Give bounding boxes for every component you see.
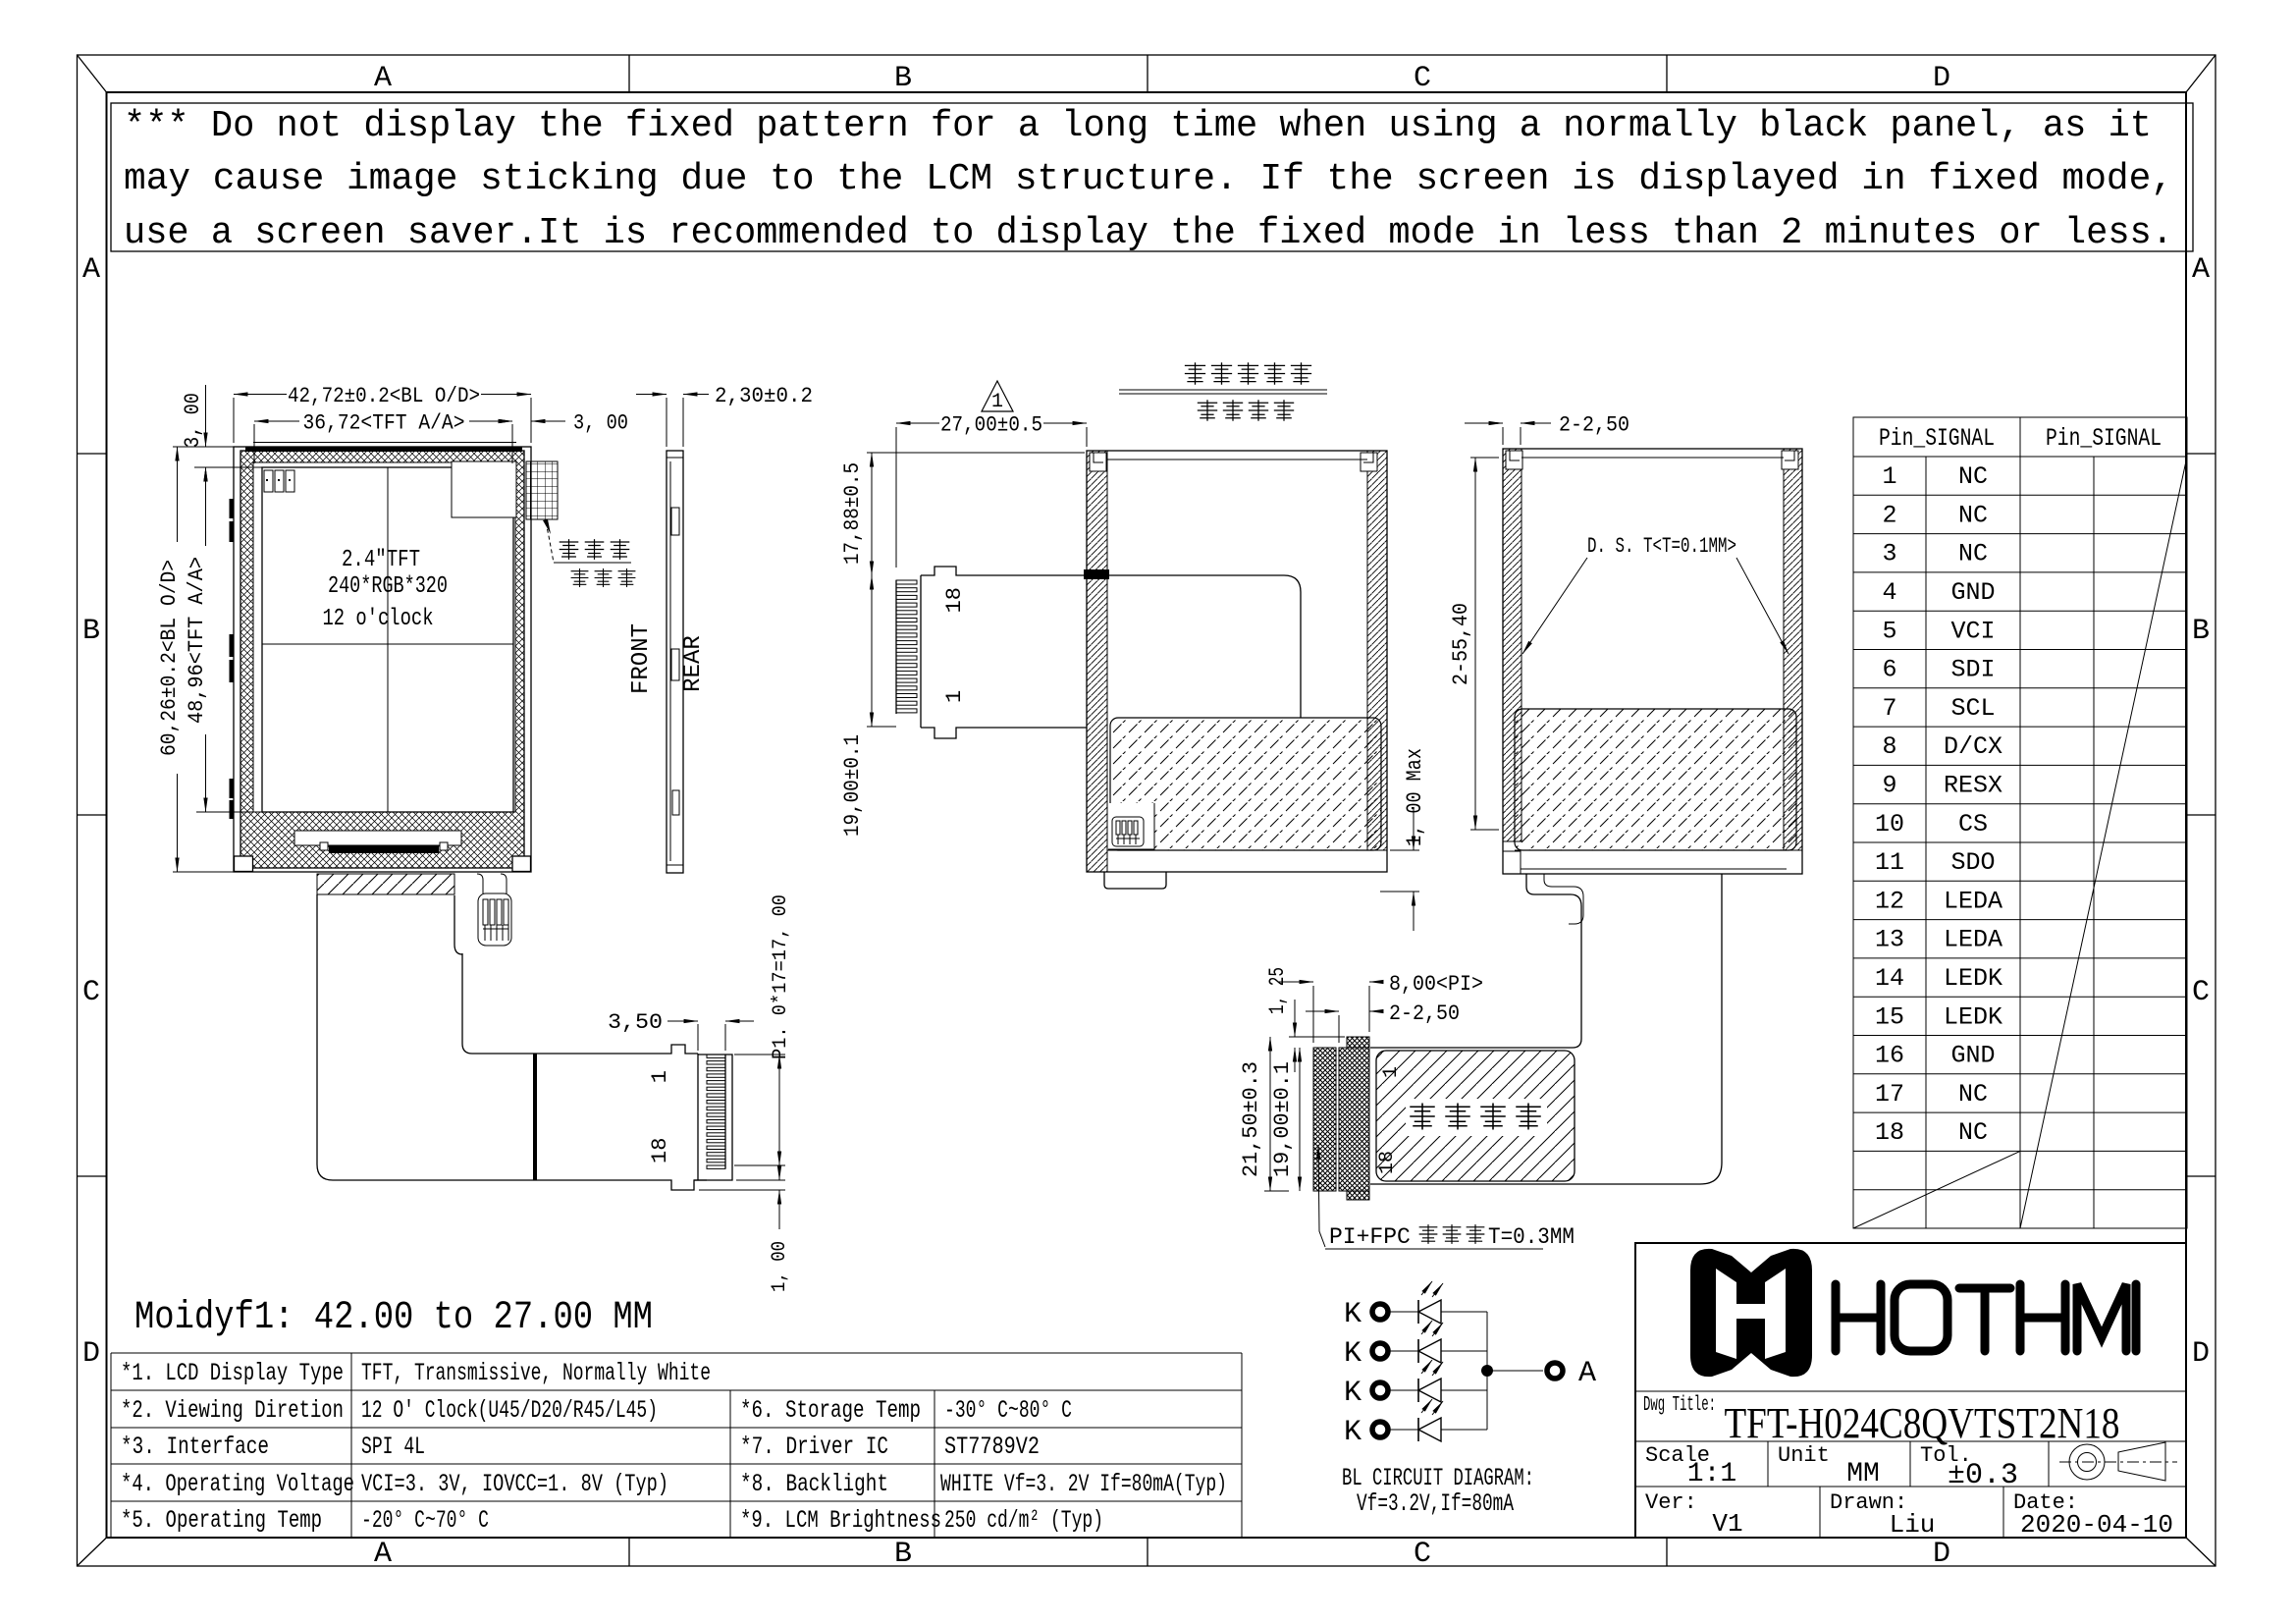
svg-text:C: C: [1414, 62, 1431, 95]
svg-text:RESX: RESX: [1944, 772, 2002, 800]
svg-text:PI+FPC: PI+FPC: [1329, 1224, 1411, 1250]
svg-text:3: 3: [1882, 540, 1896, 568]
svg-text:12: 12: [1875, 887, 1904, 915]
svg-text:use a screen saver.It is recom: use a screen saver.It is recommended to …: [124, 212, 2173, 254]
svg-text:SPI 4L: SPI 4L: [361, 1433, 425, 1461]
svg-text:LEDK: LEDK: [1944, 1002, 2002, 1031]
svg-text:12 o'clock: 12 o'clock: [323, 606, 434, 632]
svg-text:250 cd/m² (Typ): 250 cd/m² (Typ): [944, 1506, 1103, 1535]
svg-text:3, 00: 3, 00: [181, 393, 205, 448]
svg-text:*** Do not display the fixed p: *** Do not display the fixed pattern for…: [124, 105, 2152, 147]
svg-text:2-2,50: 2-2,50: [1389, 1001, 1460, 1026]
svg-text:D: D: [1933, 62, 1950, 95]
svg-text:SDO: SDO: [1950, 848, 1995, 877]
svg-text:2-55,40: 2-55,40: [1449, 603, 1473, 685]
svg-text:1: 1: [648, 1070, 672, 1083]
svg-text:LEDA: LEDA: [1944, 887, 2002, 915]
svg-text:Moidyf1: 42.00 to 27.00 MM: Moidyf1: 42.00 to 27.00 MM: [134, 1296, 653, 1340]
svg-text:A: A: [374, 62, 392, 95]
svg-text:*7. Driver IC: *7. Driver IC: [740, 1433, 888, 1461]
svg-text:1, 00: 1, 00: [769, 1241, 791, 1292]
svg-text:1, 25: 1, 25: [1265, 967, 1290, 1014]
svg-text:17,88±0.5: 17,88±0.5: [840, 462, 865, 565]
svg-text:Unit: Unit: [1778, 1443, 1830, 1468]
svg-text:NC: NC: [1958, 462, 1988, 491]
svg-text:*6. Storage Temp: *6. Storage Temp: [740, 1396, 921, 1425]
svg-text:D: D: [2192, 1337, 2210, 1371]
svg-text:LEDA: LEDA: [1944, 926, 2002, 954]
svg-text:Liu: Liu: [1890, 1510, 1936, 1540]
svg-text:V1: V1: [1712, 1509, 1742, 1539]
svg-text:1, 00 Max: 1, 00 Max: [1403, 748, 1427, 846]
svg-text:*9. LCM Brightness: *9. LCM Brightness: [740, 1506, 941, 1535]
svg-text:16: 16: [1875, 1042, 1904, 1070]
svg-text:2-2,50: 2-2,50: [1559, 413, 1629, 438]
svg-text:3, 00: 3, 00: [573, 411, 628, 436]
svg-text:3,50: 3,50: [608, 1010, 663, 1035]
svg-text:*8. Backlight: *8. Backlight: [740, 1470, 888, 1498]
svg-text:8,00<PI>: 8,00<PI>: [1389, 972, 1483, 997]
svg-text:Dwg Title:: Dwg Title:: [1643, 1394, 1716, 1417]
svg-text:7: 7: [1882, 694, 1896, 723]
svg-text:21,50±0.3: 21,50±0.3: [1239, 1061, 1263, 1177]
svg-text:-20° C~70° C: -20° C~70° C: [361, 1506, 489, 1535]
svg-text:1: 1: [942, 690, 967, 703]
svg-text:17: 17: [1875, 1080, 1904, 1109]
svg-text:14: 14: [1875, 964, 1904, 993]
svg-text:VCI=3. 3V, IOVCC=1. 8V (Typ): VCI=3. 3V, IOVCC=1. 8V (Typ): [361, 1470, 668, 1498]
svg-text:B: B: [894, 1538, 912, 1571]
svg-text:TFT, Transmissive, Normally Wh: TFT, Transmissive, Normally White: [361, 1359, 711, 1387]
svg-text:Ver:: Ver:: [1645, 1490, 1697, 1515]
svg-text:10: 10: [1875, 810, 1904, 839]
svg-text:C: C: [2192, 976, 2210, 1009]
svg-text:WHITE Vf=3. 2V If=80mA(Typ): WHITE Vf=3. 2V If=80mA(Typ): [940, 1470, 1227, 1498]
svg-text:-30° C~80° C: -30° C~80° C: [944, 1396, 1072, 1425]
svg-text:240*RGB*320: 240*RGB*320: [328, 573, 448, 600]
svg-text:A: A: [82, 253, 100, 287]
svg-text:27,00±0.5: 27,00±0.5: [940, 413, 1042, 438]
svg-text:CS: CS: [1958, 810, 1988, 839]
svg-text:B: B: [2192, 615, 2210, 648]
svg-text:BL CIRCUIT DIAGRAM:: BL CIRCUIT DIAGRAM:: [1342, 1464, 1534, 1492]
svg-text:1: 1: [1882, 462, 1896, 491]
svg-text:NC: NC: [1958, 540, 1988, 568]
svg-text:19,00±0.1: 19,00±0.1: [840, 734, 865, 837]
svg-text:Pin_SIGNAL: Pin_SIGNAL: [2046, 424, 2162, 453]
svg-text:±0.3: ±0.3: [1948, 1459, 2018, 1492]
svg-text:D/CX: D/CX: [1944, 732, 2002, 761]
svg-text:SCL: SCL: [1950, 694, 1995, 723]
svg-text:Vf=3.2V,If=80mA: Vf=3.2V,If=80mA: [1357, 1489, 1514, 1518]
svg-text:LEDK: LEDK: [1944, 964, 2002, 993]
svg-text:36,72<TFT A/A>: 36,72<TFT A/A>: [303, 411, 465, 436]
svg-text:18: 18: [1376, 1151, 1399, 1174]
svg-text:*4. Operating Voltage: *4. Operating Voltage: [121, 1470, 354, 1498]
svg-text:*2. Viewing Diretion: *2. Viewing Diretion: [121, 1396, 344, 1425]
svg-text:FRONT: FRONT: [628, 623, 655, 694]
svg-text:D: D: [82, 1337, 100, 1371]
svg-text:GND: GND: [1950, 1042, 1995, 1070]
svg-text:VCI: VCI: [1950, 617, 1995, 645]
svg-text:SDI: SDI: [1950, 656, 1995, 684]
svg-text:48,96<TFT A/A>: 48,96<TFT A/A>: [185, 557, 209, 724]
svg-text:REAR: REAR: [680, 635, 707, 692]
svg-text:1: 1: [991, 391, 1003, 413]
svg-text:2: 2: [1882, 501, 1896, 529]
svg-text:11: 11: [1875, 848, 1904, 877]
svg-text:C: C: [1414, 1538, 1431, 1571]
svg-text:MM: MM: [1846, 1459, 1880, 1489]
svg-text:A: A: [1578, 1357, 1596, 1390]
svg-text:2,30±0.2: 2,30±0.2: [715, 384, 813, 408]
svg-text:Pin_SIGNAL: Pin_SIGNAL: [1879, 424, 1995, 453]
svg-text:2020-04-10: 2020-04-10: [2020, 1510, 2173, 1540]
svg-text:D: D: [1933, 1538, 1950, 1571]
svg-text:NC: NC: [1958, 501, 1988, 529]
svg-text:B: B: [894, 62, 912, 95]
svg-text:1:1: 1:1: [1687, 1459, 1736, 1489]
svg-text:9: 9: [1882, 772, 1896, 800]
svg-text:ST7789V2: ST7789V2: [944, 1433, 1040, 1461]
svg-text:K: K: [1344, 1298, 1362, 1331]
svg-text:K: K: [1344, 1337, 1362, 1371]
svg-text:NC: NC: [1958, 1080, 1988, 1109]
svg-text:may cause image sticking due t: may cause image sticking due to the LCM …: [124, 158, 2173, 200]
svg-text:4: 4: [1882, 578, 1896, 607]
svg-text:12 O' Clock(U45/D20/R45/L45): 12 O' Clock(U45/D20/R45/L45): [361, 1396, 658, 1425]
svg-text:B: B: [82, 615, 100, 648]
svg-text:GND: GND: [1950, 578, 1995, 607]
svg-text:8: 8: [1882, 732, 1896, 761]
svg-text:60,26±0.2<BL O/D>: 60,26±0.2<BL O/D>: [157, 560, 182, 756]
svg-text:15: 15: [1875, 1002, 1904, 1031]
svg-text:18: 18: [648, 1138, 672, 1163]
svg-text:D. S. T<T=0.1MM>: D. S. T<T=0.1MM>: [1587, 534, 1736, 559]
svg-text:18: 18: [942, 587, 967, 613]
svg-text:K: K: [1344, 1377, 1362, 1410]
svg-text:18: 18: [1875, 1118, 1904, 1147]
svg-text:2.4″TFT: 2.4″TFT: [342, 547, 420, 573]
svg-text:NC: NC: [1958, 1118, 1988, 1147]
svg-text:*5. Operating Temp: *5. Operating Temp: [121, 1506, 322, 1535]
svg-text:*3. Interface: *3. Interface: [121, 1433, 269, 1461]
svg-text:*1. LCD Display Type: *1. LCD Display Type: [121, 1359, 344, 1387]
svg-text:T=0.3MM: T=0.3MM: [1488, 1224, 1575, 1250]
svg-text:42,72±0.2<BL O/D>: 42,72±0.2<BL O/D>: [288, 384, 480, 408]
svg-text:6: 6: [1882, 656, 1896, 684]
svg-text:1: 1: [1380, 1066, 1403, 1078]
svg-text:5: 5: [1882, 617, 1896, 645]
svg-text:A: A: [2192, 253, 2210, 287]
svg-text:A: A: [374, 1538, 392, 1571]
svg-text:C: C: [82, 976, 100, 1009]
svg-text:TFT-H024C8QVTST2N18: TFT-H024C8QVTST2N18: [1725, 1399, 2120, 1447]
svg-text:P1. 0*17=17, 00: P1. 0*17=17, 00: [770, 894, 792, 1059]
svg-text:K: K: [1344, 1416, 1362, 1449]
svg-text:13: 13: [1875, 926, 1904, 954]
svg-text:19,00±0.1: 19,00±0.1: [1270, 1061, 1295, 1177]
